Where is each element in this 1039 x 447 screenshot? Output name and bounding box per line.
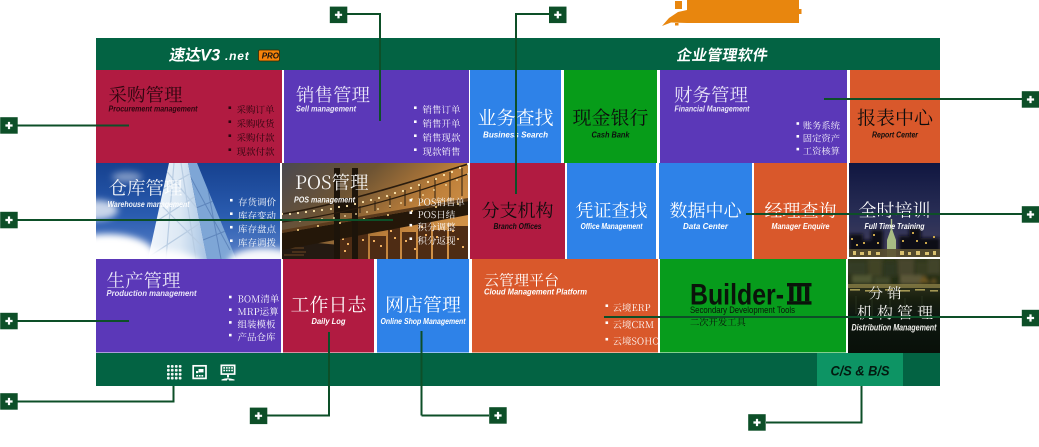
svg-text:PRO: PRO — [262, 52, 280, 61]
svg-text:Sell management: Sell management — [296, 104, 357, 114]
svg-text:.net: .net — [225, 49, 250, 63]
svg-text:Cloud Management Platform: Cloud Management Platform — [484, 286, 587, 296]
svg-text:Full Time Training: Full Time Training — [865, 221, 926, 231]
svg-text:Manager Enquire: Manager Enquire — [772, 221, 830, 231]
svg-text:POS management: POS management — [294, 195, 356, 205]
svg-text:Daily Log: Daily Log — [312, 316, 347, 326]
svg-text:Secondary Development Tools: Secondary Development Tools — [690, 305, 795, 316]
svg-text:Cash Bank: Cash Bank — [592, 130, 631, 140]
svg-text:Warehouse management: Warehouse management — [108, 199, 191, 209]
svg-text:C/S & B/S: C/S & B/S — [831, 364, 890, 379]
svg-text:V3: V3 — [200, 47, 220, 65]
svg-text:Financial Management: Financial Management — [675, 104, 751, 114]
svg-text:Procurement management: Procurement management — [109, 104, 199, 114]
svg-text:Production management: Production management — [107, 288, 198, 298]
svg-text:Report Center: Report Center — [872, 130, 919, 140]
svg-text:Office Management: Office Management — [581, 221, 644, 231]
svg-text:Distribution Management: Distribution Management — [852, 323, 938, 333]
svg-text:Data Center: Data Center — [683, 221, 729, 231]
svg-text:Online Shop Management: Online Shop Management — [381, 317, 466, 326]
svg-text:Branch Offices: Branch Offices — [494, 221, 542, 231]
